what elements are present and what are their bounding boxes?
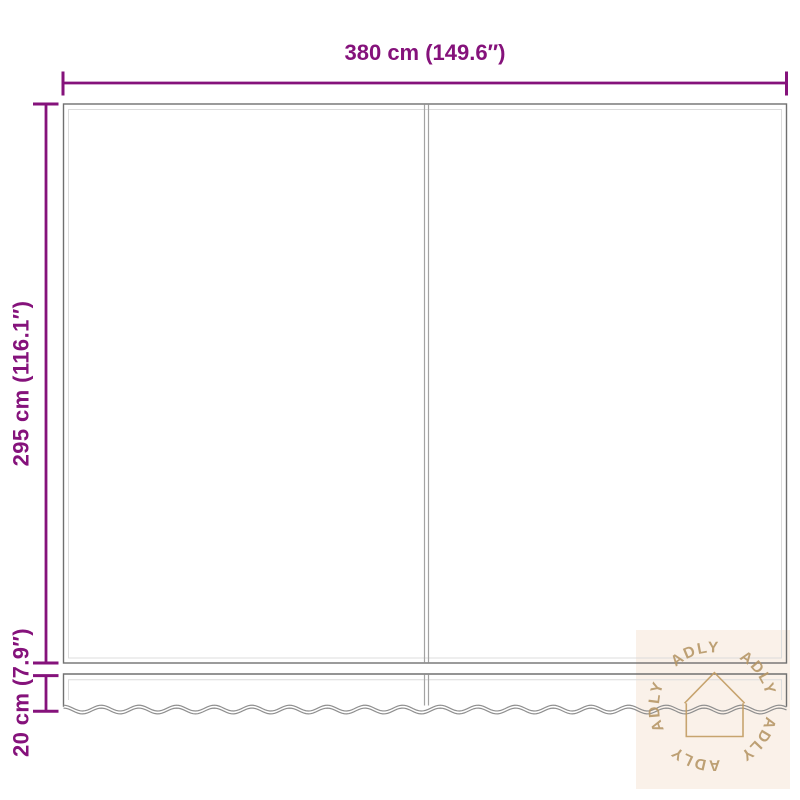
svg-text:295 cm (116.1″): 295 cm (116.1″) — [9, 301, 34, 467]
svg-text:20 cm (7.9″): 20 cm (7.9″) — [9, 628, 34, 757]
svg-text:380 cm (149.6″): 380 cm (149.6″) — [345, 40, 506, 65]
